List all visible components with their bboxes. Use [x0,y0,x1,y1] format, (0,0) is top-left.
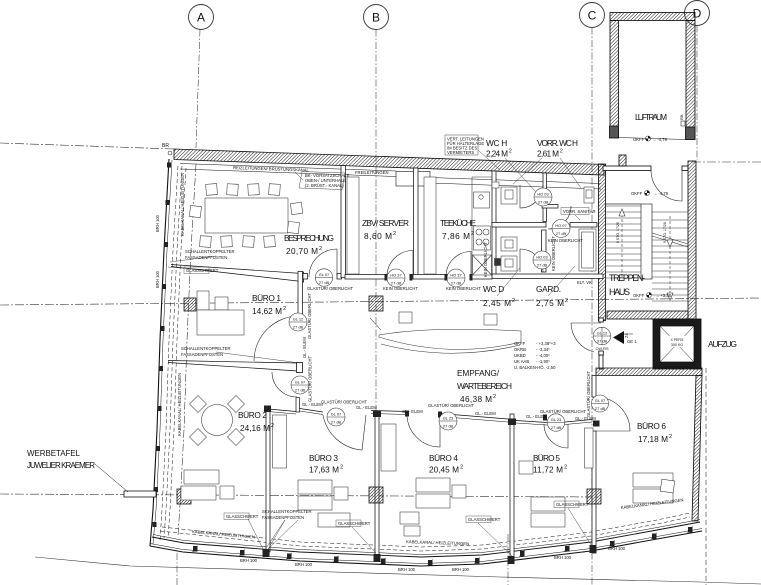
svg-text:FASSADENPFOSTEN: FASSADENPFOSTEN [262,515,304,520]
svg-text:BÜRO 1: BÜRO 1 [252,293,281,303]
svg-text:JUWELIER KRAEMER: JUWELIER KRAEMER [27,461,95,470]
svg-text:HAUS: HAUS [609,287,630,297]
svg-text:2: 2 [271,423,274,429]
svg-text:27 dB: 27 dB [295,388,306,393]
svg-text:GLASTÜR/ OBERLICHT: GLASTÜR/ OBERLICHT [428,403,475,408]
svg-text:GL.- ELEM: GL.- ELEM [526,414,547,419]
svg-text:BRH 100: BRH 100 [452,567,470,572]
svg-text:U. BALKEN-HÖ. -2,50: U. BALKEN-HÖ. -2,50 [514,365,556,370]
svg-text:24,16 M: 24,16 M [240,423,270,433]
svg-text:UK AAB: UK AAB [514,359,529,364]
svg-text:AUFZUG: AUFZUG [708,339,737,349]
svg-text:BRH 100: BRH 100 [240,558,258,563]
svg-text:ELT. VK: ELT. VK [577,280,592,285]
svg-text:SCHALLENTKOPPELTER: SCHALLENTKOPPELTER [181,346,231,351]
svg-text:8 STG. 17/28: 8 STG. 17/28 [616,222,620,243]
svg-text:WARTEBEREICH: WARTEBEREICH [457,381,512,391]
svg-text:GL 12: GL 12 [597,331,607,336]
svg-text:2: 2 [340,465,343,471]
svg-text:CW-RS: CW-RS [595,346,609,351]
svg-text:14,62 M: 14,62 M [252,306,282,316]
svg-text:20,70 M: 20,70 M [286,246,318,256]
svg-text:KABELKANAL/ HEIZLEITUNGEN: KABELKANAL/ HEIZLEITUNGEN [177,373,182,436]
svg-text:GARD.: GARD. [536,284,561,294]
svg-text:VORR. SANITÄR: VORR. SANITÄR [563,209,596,214]
svg-text:GLASTÜR/ OBERLICHT: GLASTÜR/ OBERLICHT [586,370,591,417]
svg-text:WERBETAFEL: WERBETAFEL [27,449,81,458]
svg-text:2: 2 [460,465,463,471]
svg-text:2: 2 [283,306,286,312]
svg-text:- +3,38*+3: - +3,38*+3 [536,341,556,346]
svg-text:27 dB: 27 dB [551,425,562,430]
svg-text:27 dB: 27 dB [391,281,402,286]
svg-text:TEEKÜCHE: TEEKÜCHE [440,218,476,228]
svg-text:FREILEITUNGEN: FREILEITUNGEN [355,170,389,175]
svg-text:2: 2 [471,231,474,237]
svg-text:2: 2 [564,465,567,471]
svg-text:GLASTÜR/ OBERLICHT: GLASTÜR/ OBERLICHT [307,286,354,291]
svg-text:GLASSCHWERT: GLASSCHWERT [556,502,589,507]
svg-text:20,45 M: 20,45 M [429,465,459,475]
svg-text:2,61 M: 2,61 M [537,149,559,159]
svg-text:(2. BRÜST.- KANAL): (2. BRÜST.- KANAL) [305,183,344,188]
svg-text:EMPFANG/: EMPFANG/ [457,368,500,378]
svg-text:→ -4,79: → -4,79 [652,137,668,142]
svg-text:OKFF: OKFF [631,191,643,196]
svg-text:GLASTÜR/ OBERLICHT: GLASTÜR/ OBERLICHT [308,355,313,402]
svg-text:GLASSCHWERT: GLASSCHWERT [338,521,371,526]
svg-text:- -3,34*: - -3,34* [536,347,550,352]
svg-text:KEIN OBERLICHT: KEIN OBERLICHT [446,286,481,291]
svg-text:2,75 M: 2,75 M [536,298,564,308]
svg-text:27 dB: 27 dB [443,424,454,429]
svg-text:ZBV/ SERVER: ZBV/ SERVER [362,218,409,228]
svg-text:WC H: WC H [486,138,507,148]
svg-text:27 dB: 27 dB [537,263,548,268]
svg-text:BRH 100: BRH 100 [155,270,160,288]
svg-text:GLASSCHWERT: GLASSCHWERT [226,514,259,519]
svg-text:SCHALLENTKOPPELTER: SCHALLENTKOPPELTER [185,249,235,254]
svg-text:17,18 M: 17,18 M [638,434,668,444]
svg-text:- -4,00*: - -4,00* [536,353,550,358]
svg-text:C: C [588,9,597,23]
svg-text:BRH 100: BRH 100 [554,555,572,560]
svg-text:2: 2 [565,298,568,304]
svg-text:KABELKANAL/ HEIZLEITUNGEN: KABELKANAL/ HEIZLEITUNGEN [180,173,185,236]
svg-text:OKRB: OKRB [514,347,526,352]
svg-text:24: 24 [624,333,629,338]
svg-text:BÜRO 4: BÜRO 4 [429,453,458,463]
svg-text:BESPRECHUNG: BESPRECHUNG [284,233,334,243]
svg-text:GL.- ELEM: GL.- ELEM [302,402,323,407]
svg-text:B: B [372,11,380,25]
svg-text:HO 37: HO 37 [390,273,401,278]
svg-text:GL 23: GL 23 [551,417,561,422]
svg-text:BRH 100: BRH 100 [295,562,313,567]
svg-text:GL.- ELEM: GL.- ELEM [575,416,596,421]
svg-text:GL 12: GL 12 [293,317,303,322]
svg-text:GL 07: GL 07 [319,272,329,277]
svg-text:HO 37: HO 37 [450,273,461,278]
svg-text:GL 07: GL 07 [295,380,305,385]
svg-text:HO 03: HO 03 [536,255,547,260]
svg-text:7,86 M: 7,86 M [442,231,470,241]
svg-text:2: 2 [493,394,496,400]
svg-text:→ -4,79: → -4,79 [653,191,669,196]
svg-text:- -1,90*: - -1,90* [536,359,550,364]
svg-text:27 dB: 27 dB [293,325,304,330]
svg-text:KEIN OBERLICHT: KEIN OBERLICHT [551,236,556,271]
svg-text:9 STG. 17/28: 9 STG. 17/28 [663,222,667,243]
svg-text:27 dB: 27 dB [319,280,330,285]
svg-text:2,45 M: 2,45 M [483,298,511,308]
svg-text:FASSADENPFOSTEN: FASSADENPFOSTEN [181,352,223,357]
svg-text:VORR. WC H: VORR. WC H [537,138,578,148]
svg-text:VERMIETERS: VERMIETERS [447,150,474,155]
svg-text:BÜRO 2: BÜRO 2 [238,410,267,420]
svg-text:GLASTÜR/ OBERLICHT: GLASTÜR/ OBERLICHT [307,292,312,339]
svg-text:GL 07: GL 07 [331,412,341,417]
svg-text:OKFF: OKFF [514,341,526,346]
svg-text:27 dB: 27 dB [556,231,567,236]
svg-text:GL 23: GL 23 [443,416,453,421]
svg-text:BRH 100: BRH 100 [608,546,626,551]
svg-text:BÜRO 6: BÜRO 6 [637,421,666,431]
svg-text:BÜRO 3: BÜRO 3 [309,453,338,463]
svg-text:17,63 M: 17,63 M [309,465,339,475]
svg-text:GL.- ELEM: GL.- ELEM [475,411,496,416]
svg-text:2: 2 [512,298,515,304]
svg-text:UKBD: UKBD [514,353,526,358]
svg-text:27 dB: 27 dB [595,406,606,411]
svg-text:27 dB: 27 dB [451,281,462,286]
svg-text:GLASTÜR/ OBERLICHT: GLASTÜR/ OBERLICHT [540,409,587,414]
svg-text:OKFF: OKFF [633,293,645,298]
svg-text:RB: RB [679,114,684,120]
svg-text:GL.- ELEM: GL.- ELEM [356,405,377,410]
svg-text:OKFF: OKFF [633,137,645,142]
svg-text:2,24 M: 2,24 M [486,149,508,159]
svg-text:HO 07: HO 07 [555,223,566,228]
svg-text:GL.- ELEM: GL.- ELEM [302,337,307,358]
svg-text:GE 1: GE 1 [627,339,637,344]
svg-text:GL.- ELEM: GL.- ELEM [402,409,423,414]
svg-text:GLASSCHWERT: GLASSCHWERT [468,517,501,522]
svg-text:A: A [197,11,205,25]
svg-text:27 dB: 27 dB [538,200,549,205]
svg-text:BÜRO 5: BÜRO 5 [533,453,560,463]
svg-text:2: 2 [669,434,672,440]
svg-text:HO 03: HO 03 [537,192,548,197]
svg-text:2: 2 [319,246,322,252]
svg-text:KEIN OBERLICHT: KEIN OBERLICHT [483,242,488,277]
svg-text:SCHALLENTKOPPELTER: SCHALLENTKOPPELTER [262,509,312,514]
svg-text:11,72 M: 11,72 M [533,465,563,475]
svg-text:→ +3,38: → +3,38 [655,293,672,298]
svg-text:2: 2 [509,149,512,155]
svg-text:2: 2 [560,149,563,155]
svg-text:8,60 M: 8,60 M [364,231,392,241]
svg-text:BR: BR [162,143,169,149]
svg-text:GL 07: GL 07 [595,398,605,403]
svg-text:4 PERS: 4 PERS [671,338,684,342]
svg-text:37 dB: 37 dB [597,339,608,344]
svg-text:LUFTRAUM: LUFTRAUM [635,112,667,122]
svg-text:KEIN OBERLICHT: KEIN OBERLICHT [383,286,418,291]
svg-text:2: 2 [393,231,396,237]
svg-text:27 dB: 27 dB [331,420,342,425]
svg-text:WC D: WC D [483,284,504,294]
svg-text:TREPPEN-: TREPPEN- [609,273,645,283]
svg-text:300 KG: 300 KG [671,343,683,347]
svg-text:BRH 100: BRH 100 [155,214,160,232]
svg-text:BRH 100: BRH 100 [398,567,416,572]
svg-text:GLASTÜR/ OBERLICHT: GLASTÜR/ OBERLICHT [321,400,368,405]
